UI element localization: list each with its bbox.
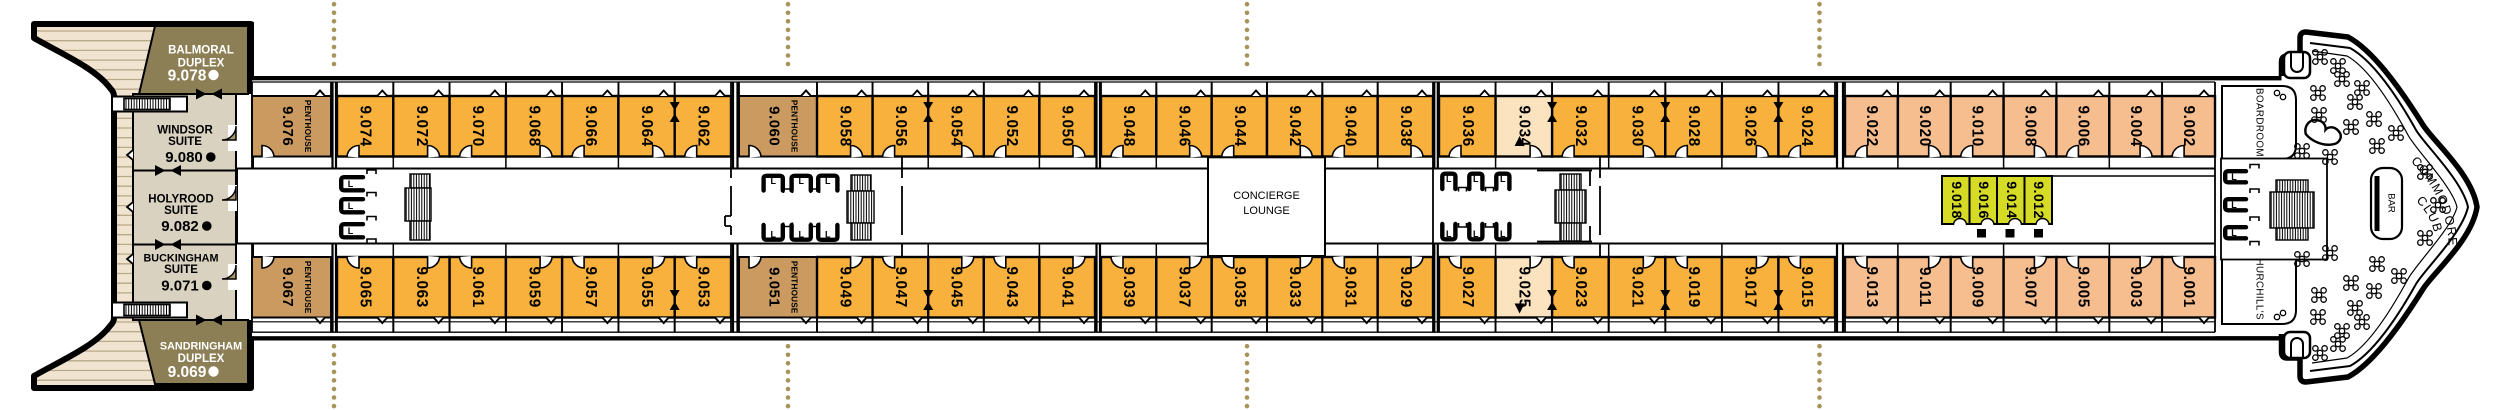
svg-text:9.072: 9.072 — [413, 106, 430, 147]
svg-text:9.078: 9.078 — [168, 68, 207, 85]
svg-text:9.013: 9.013 — [1863, 267, 1880, 308]
svg-text:L: L — [1500, 229, 1506, 239]
svg-text:L: L — [798, 176, 804, 186]
svg-text:L: L — [825, 230, 831, 240]
svg-text:PENTHOUSE: PENTHOUSE — [303, 100, 312, 153]
svg-text:SANDRINGHAM: SANDRINGHAM — [160, 341, 242, 353]
svg-text:9.049: 9.049 — [836, 267, 853, 308]
svg-text:9.021: 9.021 — [1629, 267, 1646, 308]
svg-text:9.004: 9.004 — [2127, 106, 2144, 147]
svg-text:BAR: BAR — [2386, 193, 2397, 213]
svg-text:L: L — [348, 179, 354, 189]
svg-text:9.059: 9.059 — [526, 267, 543, 308]
svg-text:9.065: 9.065 — [357, 267, 374, 308]
svg-text:9.080: 9.080 — [165, 149, 203, 166]
svg-text:9.039: 9.039 — [1120, 267, 1137, 308]
svg-text:9.029: 9.029 — [1397, 267, 1414, 308]
svg-text:BALMORAL: BALMORAL — [168, 45, 234, 57]
svg-text:9.041: 9.041 — [1059, 267, 1076, 308]
svg-text:PENTHOUSE: PENTHOUSE — [790, 100, 799, 153]
svg-text:L: L — [1446, 229, 1452, 239]
svg-text:9.066: 9.066 — [582, 106, 599, 147]
svg-text:9.006: 9.006 — [2074, 106, 2091, 147]
svg-text:L: L — [1473, 174, 1479, 184]
svg-text:9.068: 9.068 — [526, 106, 543, 147]
svg-text:9.016: 9.016 — [1975, 181, 1991, 219]
svg-text:9.010: 9.010 — [1969, 106, 1986, 147]
svg-text:9.036: 9.036 — [1459, 106, 1476, 147]
svg-text:9.023: 9.023 — [1572, 267, 1589, 308]
svg-text:9.007: 9.007 — [2022, 267, 2039, 308]
svg-text:L: L — [798, 230, 804, 240]
svg-text:9.008: 9.008 — [2022, 106, 2039, 147]
svg-text:9.022: 9.022 — [1863, 106, 1880, 147]
svg-text:HOLYROOD: HOLYROOD — [148, 194, 213, 206]
svg-text:L: L — [348, 226, 354, 236]
svg-text:9.040: 9.040 — [1342, 106, 1359, 147]
svg-text:9.069: 9.069 — [168, 364, 207, 381]
svg-text:9.005: 9.005 — [2074, 267, 2091, 308]
svg-text:9.045: 9.045 — [948, 267, 965, 308]
svg-text:L: L — [2231, 200, 2237, 210]
svg-text:9.024: 9.024 — [1798, 106, 1815, 147]
svg-text:9.014: 9.014 — [2003, 181, 2019, 219]
svg-text:9.035: 9.035 — [1231, 267, 1248, 308]
svg-text:9.019: 9.019 — [1685, 267, 1702, 308]
svg-text:9.018: 9.018 — [1948, 181, 1964, 219]
svg-text:L: L — [2231, 172, 2237, 182]
svg-text:9.060: 9.060 — [766, 106, 783, 146]
svg-text:9.074: 9.074 — [357, 106, 374, 147]
svg-text:9.031: 9.031 — [1342, 267, 1359, 308]
svg-text:L: L — [1500, 174, 1506, 184]
svg-text:9.067: 9.067 — [279, 267, 296, 307]
svg-text:SUITE: SUITE — [168, 136, 202, 148]
svg-text:L: L — [2231, 228, 2237, 238]
svg-text:9.043: 9.043 — [1003, 267, 1020, 308]
svg-text:9.070: 9.070 — [469, 106, 486, 147]
svg-text:9.020: 9.020 — [1916, 106, 1933, 147]
svg-text:9.038: 9.038 — [1397, 106, 1414, 147]
svg-text:BOARDROOM: BOARDROOM — [2254, 88, 2265, 157]
svg-text:9.042: 9.042 — [1286, 106, 1303, 147]
svg-text:9.025: 9.025 — [1515, 267, 1532, 308]
svg-text:9.027: 9.027 — [1459, 267, 1476, 308]
svg-text:L: L — [770, 176, 776, 186]
svg-text:9.011: 9.011 — [1916, 267, 1933, 307]
svg-text:L: L — [348, 201, 354, 211]
svg-text:9.058: 9.058 — [836, 106, 853, 147]
svg-text:9.057: 9.057 — [582, 267, 599, 308]
svg-text:9.056: 9.056 — [892, 106, 909, 147]
svg-text:BUCKINGHAM: BUCKINGHAM — [144, 253, 219, 265]
svg-text:SUITE: SUITE — [164, 205, 198, 217]
svg-text:9.051: 9.051 — [766, 267, 783, 307]
svg-text:9.002: 9.002 — [2180, 106, 2197, 147]
svg-text:PENTHOUSE: PENTHOUSE — [790, 261, 799, 314]
svg-text:9.015: 9.015 — [1798, 267, 1815, 308]
svg-text:L: L — [1446, 174, 1452, 184]
svg-text:9.026: 9.026 — [1742, 106, 1759, 147]
svg-text:CHURCHILL'S: CHURCHILL'S — [2254, 251, 2265, 320]
svg-text:PENTHOUSE: PENTHOUSE — [303, 261, 312, 314]
svg-text:9.032: 9.032 — [1572, 106, 1589, 147]
svg-text:L: L — [1473, 229, 1479, 239]
svg-text:CONCIERGE: CONCIERGE — [1233, 190, 1300, 202]
svg-text:9.055: 9.055 — [638, 267, 655, 308]
svg-text:9.054: 9.054 — [948, 106, 965, 147]
svg-text:L: L — [770, 230, 776, 240]
svg-text:9.061: 9.061 — [469, 267, 486, 308]
svg-text:9.001: 9.001 — [2180, 267, 2197, 308]
svg-text:WINDSOR: WINDSOR — [157, 125, 213, 137]
svg-text:SUITE: SUITE — [164, 264, 198, 276]
svg-text:9.044: 9.044 — [1231, 106, 1248, 147]
svg-text:9.064: 9.064 — [638, 106, 655, 147]
svg-text:9.017: 9.017 — [1742, 267, 1759, 308]
svg-text:9.009: 9.009 — [1969, 267, 1986, 308]
svg-text:LOUNGE: LOUNGE — [1243, 205, 1289, 217]
svg-text:9.047: 9.047 — [892, 267, 909, 308]
svg-text:9.053: 9.053 — [694, 267, 711, 308]
svg-text:9.012: 9.012 — [2030, 181, 2046, 219]
svg-text:9.028: 9.028 — [1685, 106, 1702, 147]
svg-text:L: L — [825, 176, 831, 186]
svg-text:9.037: 9.037 — [1176, 267, 1193, 308]
svg-text:9.048: 9.048 — [1120, 106, 1137, 147]
svg-text:9.071: 9.071 — [161, 278, 199, 295]
svg-text:9.052: 9.052 — [1003, 106, 1020, 147]
svg-text:9.033: 9.033 — [1286, 267, 1303, 308]
svg-text:9.082: 9.082 — [161, 218, 199, 235]
svg-text:9.003: 9.003 — [2127, 267, 2144, 308]
svg-text:9.062: 9.062 — [694, 106, 711, 147]
svg-text:9.046: 9.046 — [1176, 106, 1193, 147]
svg-text:9.030: 9.030 — [1629, 106, 1646, 147]
svg-text:9.076: 9.076 — [279, 106, 296, 146]
svg-text:9.050: 9.050 — [1059, 106, 1076, 147]
svg-text:9.063: 9.063 — [413, 267, 430, 308]
